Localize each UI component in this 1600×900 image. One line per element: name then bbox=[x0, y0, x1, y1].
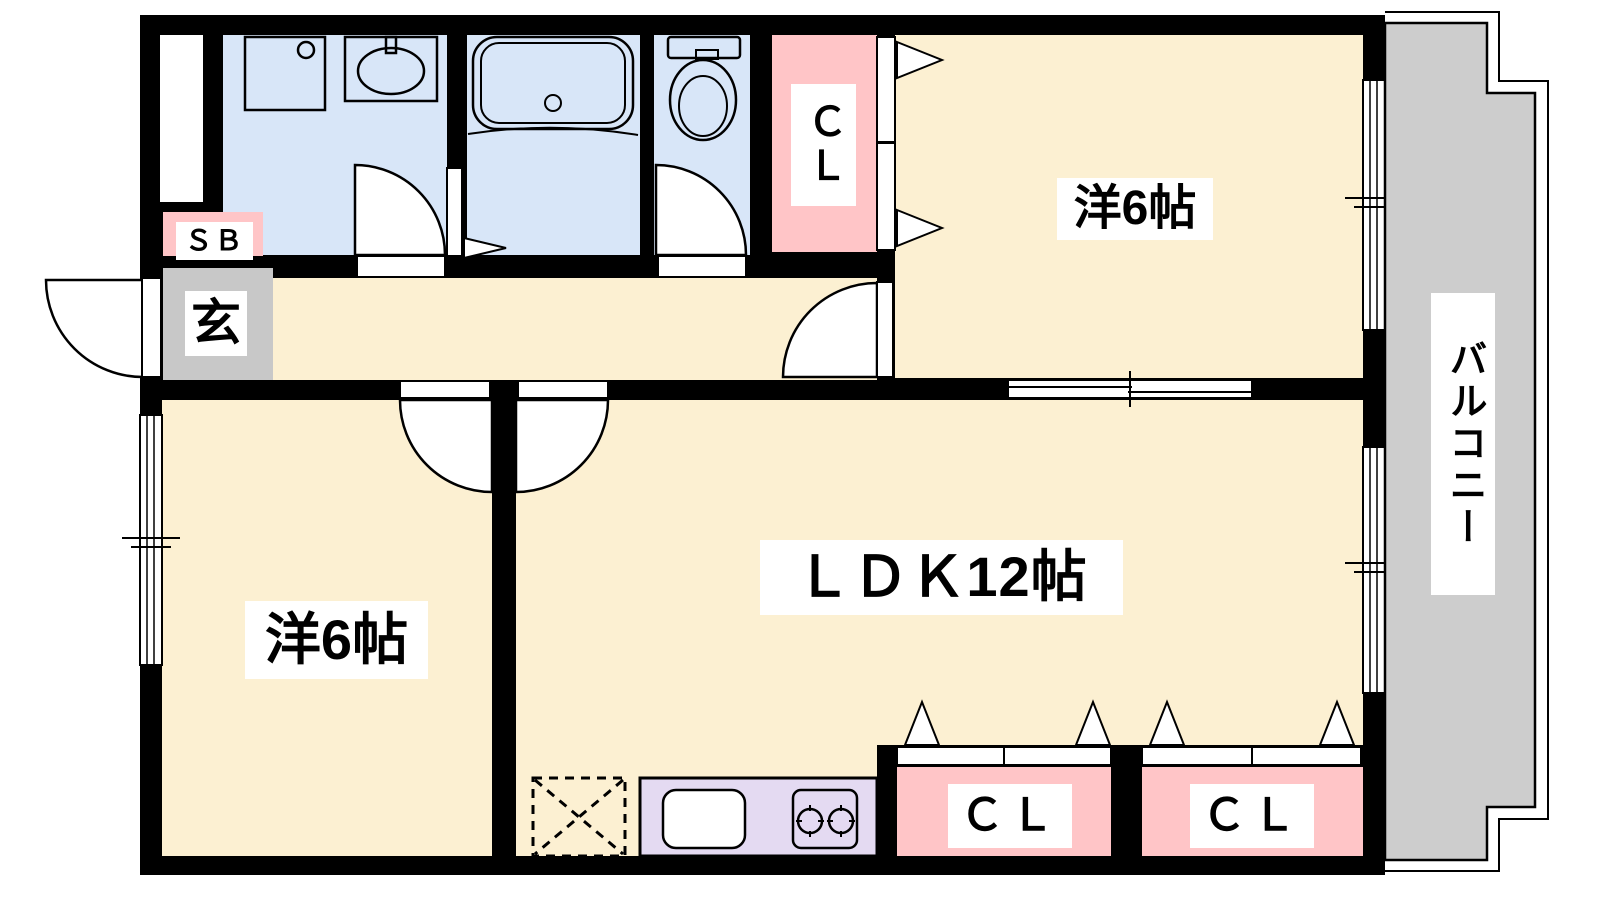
closet-bottom-right-label: ＣＬ bbox=[1190, 784, 1314, 848]
bedroom-bottom-label: 洋6帖 bbox=[245, 601, 428, 679]
service-void bbox=[160, 35, 203, 202]
floor-plan: 洋6帖 洋6帖 ＬＤＫ12帖 ＣＬ ＣＬ ＣＬ ＳＢ 玄 バルコニー bbox=[0, 0, 1600, 900]
closet-bottom-left-label: ＣＬ bbox=[948, 784, 1072, 848]
kitchen-sink-icon bbox=[663, 790, 745, 848]
balcony-label: バルコニー bbox=[1431, 293, 1495, 595]
bedroom-top-label: 洋6帖 bbox=[1057, 178, 1213, 240]
ldk-label: ＬＤＫ12帖 bbox=[760, 540, 1123, 615]
entrance-label: 玄 bbox=[185, 291, 247, 356]
stove-icon bbox=[793, 790, 857, 848]
entrance-door bbox=[46, 278, 161, 377]
closet-top-label: ＣＬ bbox=[791, 84, 856, 206]
bathroom-floor bbox=[467, 35, 640, 255]
shoe-box-label: ＳＢ bbox=[176, 222, 253, 260]
